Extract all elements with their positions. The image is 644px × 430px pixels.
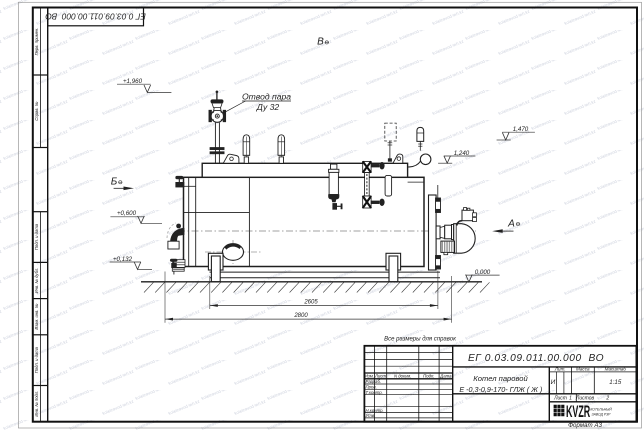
svg-text:ЕГ 0.03.09.011.00.000 ВО: ЕГ 0.03.09.011.00.000 ВО	[45, 12, 146, 22]
svg-text:Справ. №: Справ. №	[34, 101, 39, 120]
svg-text:Лист: Лист	[553, 396, 567, 402]
svg-text:Разраб.: Разраб.	[366, 379, 382, 384]
svg-text:Подп. и дата: Подп. и дата	[34, 223, 39, 250]
svg-text:Формат А3: Формат А3	[568, 422, 602, 429]
svg-text:Инв. № подл.: Инв. № подл.	[34, 391, 39, 417]
svg-text:И: И	[551, 379, 556, 386]
svg-text:Изм.: Изм.	[365, 374, 374, 379]
svg-text:Б: Б	[111, 177, 118, 188]
svg-text:2605: 2605	[303, 300, 318, 306]
svg-text:+0,600: +0,600	[117, 210, 137, 217]
svg-text:А: А	[507, 218, 515, 229]
svg-text:Лист: Лист	[374, 374, 386, 379]
svg-text:Н.контр.: Н.контр.	[366, 408, 384, 413]
svg-text:2800: 2800	[293, 313, 308, 319]
svg-text:Е -0,3-0,9-170- ГЛЖ ( Ж ): Е -0,3-0,9-170- ГЛЖ ( Ж )	[459, 385, 542, 394]
svg-text:2: 2	[605, 396, 609, 402]
svg-text:Пров.: Пров.	[366, 385, 377, 390]
svg-text:КОТЕЛЬНЫЙ: КОТЕЛЬНЫЙ	[590, 407, 612, 411]
svg-text:ЕГ 0.03.09.011.00.000 ВО: ЕГ 0.03.09.011.00.000 ВО	[468, 353, 604, 364]
svg-text:KVZR: KVZR	[566, 402, 591, 421]
svg-text:ЗАВОД РЗР: ЗАВОД РЗР	[592, 412, 612, 416]
svg-text:Листов: Листов	[575, 396, 595, 402]
svg-text:Дата: Дата	[439, 374, 452, 379]
svg-text:Все размеры для справок: Все размеры для справок	[384, 337, 457, 343]
svg-text:В: В	[317, 37, 324, 48]
svg-text:Масса: Масса	[576, 367, 590, 372]
svg-text:Взам. инв. №: Взам. инв. №	[34, 303, 39, 329]
svg-text:N докум.: N докум.	[394, 374, 411, 379]
svg-text:Подп. и дата: Подп. и дата	[34, 346, 39, 373]
svg-text:Лит.: Лит.	[554, 367, 566, 372]
svg-text:1: 1	[569, 396, 572, 402]
svg-text:1:15: 1:15	[609, 379, 622, 386]
svg-text:Котел паровой: Котел паровой	[473, 374, 528, 383]
svg-text:Перв. примен.: Перв. примен.	[34, 28, 39, 56]
svg-text:Т.контр.: Т.контр.	[366, 390, 383, 395]
svg-text:Ду 32: Ду 32	[256, 102, 280, 112]
svg-text:Инв. № дубл.: Инв. № дубл.	[34, 268, 39, 294]
svg-text:Отвод пара: Отвод пара	[242, 91, 291, 101]
svg-text:Утв.: Утв.	[366, 413, 376, 418]
svg-text:Масштаб: Масштаб	[605, 367, 627, 372]
svg-text:Подп.: Подп.	[423, 374, 434, 379]
